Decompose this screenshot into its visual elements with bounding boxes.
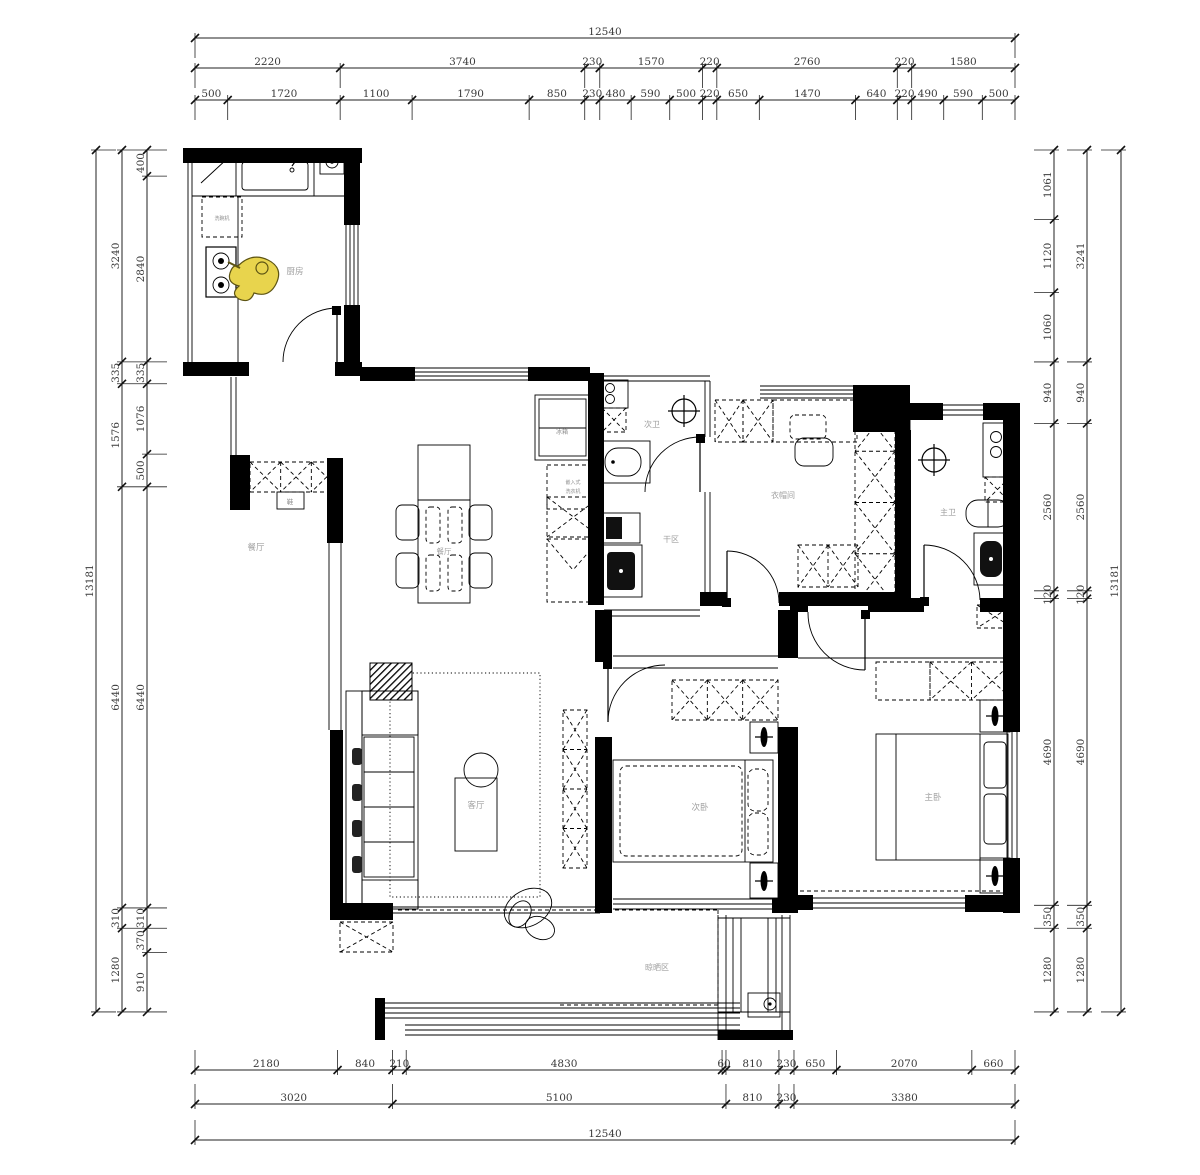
- dimension-value: 12540: [588, 1128, 621, 1140]
- dimension-value: 220: [700, 88, 720, 100]
- sofa: [346, 691, 418, 909]
- dimension-value: 660: [983, 1058, 1003, 1070]
- dry-area-cabinet: [602, 513, 640, 543]
- dimension-value: 500: [989, 88, 1009, 100]
- dimension-value: 220: [700, 56, 720, 68]
- room-label-dining-west: 餐厅: [247, 542, 265, 552]
- dimension-value: 310: [135, 908, 147, 928]
- dishwasher: 洗碗机: [202, 197, 242, 237]
- master-bath: 主卫: [918, 423, 1010, 585]
- dimension-value: 2840: [135, 256, 147, 283]
- dimension-value: 940: [1075, 383, 1087, 403]
- balcony-door: [718, 915, 790, 1040]
- balcony: 晾晒区: [340, 910, 790, 1040]
- room-label-dry-area: 干区: [663, 535, 679, 544]
- dimension-value: 3240: [110, 243, 122, 270]
- dimension-value: 220: [894, 56, 914, 68]
- dimension-value: 590: [953, 88, 973, 100]
- dimension-value: 60: [717, 1058, 730, 1070]
- dimension-value: 650: [805, 1058, 825, 1070]
- dimension-value: 3740: [449, 56, 476, 68]
- dimension-value: 500: [135, 460, 147, 480]
- room-label-master-bath: 主卫: [940, 507, 956, 517]
- dry-area-and-baths: 冰箱 嵌入式 洗衣机 干区: [535, 380, 700, 602]
- nightstand: [750, 722, 778, 753]
- shoe-cabinet-label: 鞋: [287, 497, 294, 506]
- dimension-value: 650: [728, 88, 748, 100]
- dimension-value: 2070: [891, 1058, 918, 1070]
- cloakroom-door: [722, 551, 779, 607]
- second-bedroom-door: [603, 660, 665, 722]
- dimension-value: 6440: [110, 684, 122, 711]
- dimension-value: 220: [894, 88, 914, 100]
- dimension-value: 350: [1042, 907, 1054, 927]
- second-bedroom: 次卧: [613, 680, 778, 898]
- bed-master: [876, 734, 1008, 860]
- dimension-value: 810: [742, 1092, 762, 1104]
- dimension-value: 590: [640, 88, 660, 100]
- dishwasher-label: 洗碗机: [214, 215, 229, 222]
- dimension-value: 500: [201, 88, 221, 100]
- floor-plan-drawing: 洗碗机 厨房 鞋 餐厅: [0, 0, 1200, 1175]
- dining-table: 餐厅: [396, 445, 492, 603]
- plant: [497, 880, 558, 943]
- fridge-label: 冰箱: [556, 428, 568, 436]
- storage-cabinet: [743, 400, 773, 442]
- dimension-value: 910: [135, 972, 147, 992]
- balcony-basin: [748, 993, 780, 1017]
- dimension-value: 6440: [135, 684, 147, 711]
- dimension-value: 210: [389, 1058, 409, 1070]
- dimension-value: 4830: [551, 1058, 578, 1070]
- dimension-value: 480: [605, 88, 625, 100]
- floor-plan-page: 洗碗机 厨房 鞋 餐厅: [0, 0, 1200, 1175]
- kitchen-door: [283, 306, 341, 362]
- dimension-value: 1580: [950, 56, 977, 68]
- storage-cabinet: [930, 662, 1013, 700]
- room-label-kitchen: 厨房: [286, 266, 303, 276]
- dimension-value: 1280: [110, 957, 122, 984]
- master-bedroom-door: [808, 610, 870, 670]
- windows: [346, 225, 1017, 1035]
- dimension-value: 2560: [1042, 494, 1054, 521]
- dimension-value: 230: [582, 56, 602, 68]
- dimension-value: 1060: [1042, 314, 1054, 341]
- washer-label-2: 洗衣机: [565, 488, 580, 495]
- dimension-value: 2560: [1075, 494, 1087, 521]
- dimension-value: 2180: [253, 1058, 280, 1070]
- dimension-value: 500: [676, 88, 696, 100]
- dimension-value: 13181: [1109, 564, 1121, 597]
- dimension-value: 1076: [135, 405, 147, 432]
- dimension-value: 1280: [1042, 957, 1054, 984]
- dimension-value: 2760: [794, 56, 821, 68]
- storage-cabinet: [672, 680, 778, 720]
- dimension-value: 3241: [1075, 243, 1087, 270]
- dimension-value: 335: [110, 363, 122, 383]
- storage-cabinet: [602, 408, 626, 432]
- living-room: 客厅: [346, 663, 587, 944]
- room-label-second-bedroom: 次卧: [691, 802, 709, 812]
- nightstand: [750, 863, 778, 898]
- dimension-value: 1120: [1042, 243, 1054, 270]
- dimension-value: 400: [135, 153, 147, 173]
- dimension-value: 3380: [891, 1092, 918, 1104]
- room-label-dining-table: 餐厅: [437, 547, 452, 556]
- storage-cabinet: [715, 400, 743, 442]
- dimension-value: 230: [582, 88, 602, 100]
- master-bedroom: 主卧: [800, 605, 1013, 893]
- master-bath-door: [920, 545, 980, 606]
- second-bath-door: [645, 434, 705, 492]
- dimension-value: 120: [1042, 585, 1054, 605]
- kitchen-fixtures: 洗碗机 厨房: [192, 150, 344, 362]
- floor-drain-second-bath: [668, 395, 700, 427]
- room-label-master-bedroom: 主卧: [924, 792, 942, 802]
- dimension-value: 4690: [1075, 739, 1087, 766]
- room-label-cloakroom: 衣帽间: [771, 490, 795, 500]
- dimension-value: 1470: [794, 88, 821, 100]
- dimension-value: 13181: [84, 564, 96, 597]
- dry-area-sink: [600, 545, 642, 597]
- dimension-value: 350: [1075, 907, 1087, 927]
- dimension-value: 940: [1042, 383, 1054, 403]
- washer-label-1: 嵌入式: [565, 479, 580, 486]
- dimension-value: 810: [742, 1058, 762, 1070]
- walls: [183, 148, 1020, 1040]
- dimension-value: 1570: [638, 56, 665, 68]
- dimension-value: 230: [776, 1092, 796, 1104]
- dimension-value: 1790: [457, 88, 484, 100]
- shoe-cabinet: 鞋: [277, 492, 304, 509]
- second-bath-basin: [600, 441, 650, 483]
- dimension-value: 2220: [254, 56, 281, 68]
- room-label-second-bath: 次卫: [644, 419, 660, 429]
- dimension-value: 490: [918, 88, 938, 100]
- dimension-value: 3020: [280, 1092, 307, 1104]
- dimension-annotations: 1254022203740230157022027602201580500172…: [84, 26, 1126, 1145]
- floor-drain-master-bath: [918, 444, 950, 476]
- dimension-value: 1280: [1075, 957, 1087, 984]
- dimension-value: 370: [135, 930, 147, 950]
- dimension-value: 1720: [271, 88, 298, 100]
- dimension-value: 310: [110, 908, 122, 928]
- dimension-value: 840: [355, 1058, 375, 1070]
- dimension-value: 230: [776, 1058, 796, 1070]
- storage-cabinet: [563, 710, 587, 868]
- dining-area: 鞋 餐厅 餐厅: [247, 445, 492, 603]
- second-bath-washer-column: [602, 380, 628, 408]
- dimension-value: 1061: [1042, 171, 1054, 198]
- storage-cabinet: [798, 545, 858, 587]
- room-label-living: 客厅: [467, 800, 485, 810]
- dimension-value: 4690: [1042, 739, 1054, 766]
- dimension-value: 335: [135, 363, 147, 383]
- storage-cabinet: [340, 922, 393, 952]
- fridge: 冰箱: [535, 395, 590, 460]
- dimension-value: 5100: [546, 1092, 573, 1104]
- dimension-value: 1576: [110, 422, 122, 449]
- dimension-value: 850: [547, 88, 567, 100]
- dimension-value: 640: [866, 88, 886, 100]
- room-label-balcony: 晾晒区: [645, 962, 669, 972]
- dimension-value: 12540: [588, 26, 621, 38]
- dimension-value: 120: [1075, 585, 1087, 605]
- dimension-value: 1100: [363, 88, 390, 100]
